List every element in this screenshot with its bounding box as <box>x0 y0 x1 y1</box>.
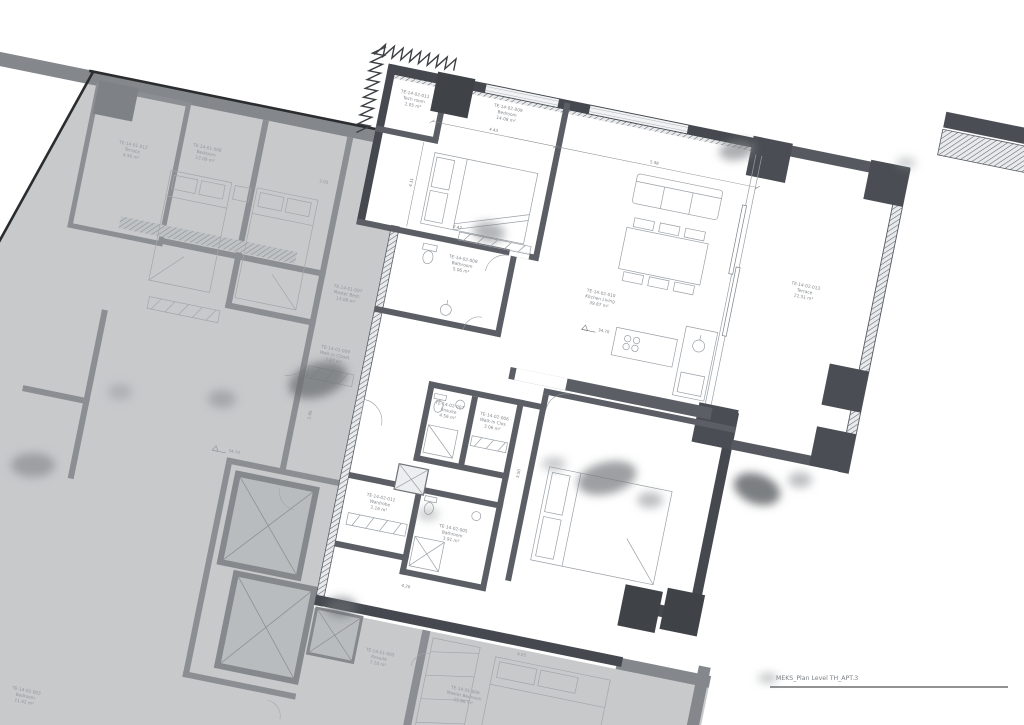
elevator-shaft <box>220 474 316 578</box>
smudge <box>11 453 55 477</box>
smudge <box>417 507 439 521</box>
smudge <box>729 467 784 512</box>
floor-plan-page: TE-14-01-012 Terrace 4.56 m² TE-14-01-00… <box>0 0 1024 725</box>
floor-plan-canvas: TE-14-01-012 Terrace 4.56 m² TE-14-01-00… <box>0 0 1024 725</box>
elevator-shaft <box>217 573 314 681</box>
terrace-column <box>746 136 793 183</box>
rotated-plan: TE-14-01-012 Terrace 4.56 m² TE-14-01-00… <box>0 0 1024 725</box>
drawing-title-text: MEKS_Plan Level TH_APT.3 <box>776 675 858 682</box>
smudge <box>758 673 778 683</box>
terrace-column <box>821 364 869 413</box>
duct-shaft <box>308 608 362 662</box>
terrace-column <box>809 426 856 473</box>
smudge <box>108 384 132 400</box>
smudge <box>325 597 357 617</box>
smudge <box>208 390 236 408</box>
smudge <box>896 157 916 169</box>
smudge <box>637 492 663 508</box>
break-line-zigzag-horizontal <box>374 43 456 71</box>
duct-shaft <box>394 464 429 495</box>
title-block: MEKS_Plan Level TH_APT.3 <box>770 675 1008 687</box>
smudge <box>788 472 812 488</box>
structural-column <box>430 72 475 119</box>
smudge <box>542 457 566 471</box>
